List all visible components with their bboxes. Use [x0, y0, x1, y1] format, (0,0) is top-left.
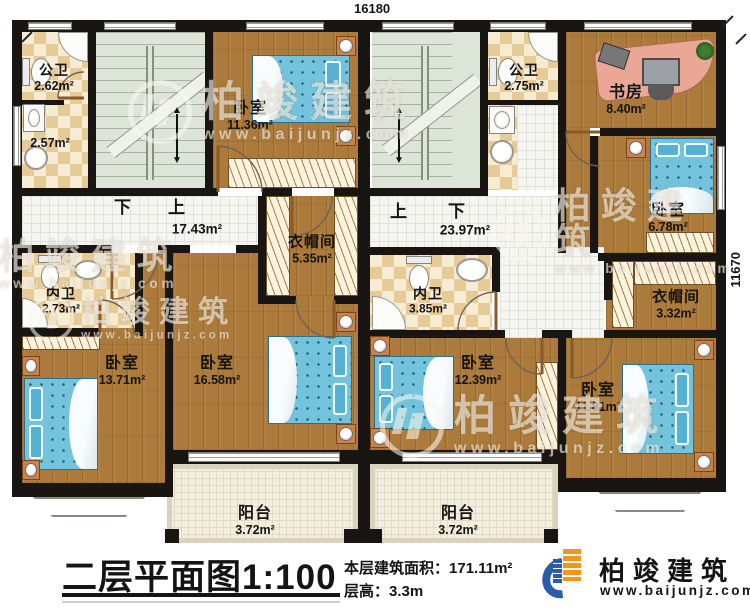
room-label-ensuite-left: 内卫2.73m²	[42, 286, 80, 315]
stair-label-down-right: 下	[448, 197, 465, 222]
room-label-laundry-left: 2.57m²	[30, 136, 70, 150]
plan-info: 本层建筑面积：171.11m² 层高：3.3m	[344, 557, 512, 604]
stair-label-up-left: 上	[168, 193, 185, 218]
floor-area-line: 本层建筑面积：171.11m²	[344, 557, 512, 580]
room-label-study: 书房8.40m²	[606, 84, 646, 116]
title-block: 二层平面图1:100 本层建筑面积：171.11m² 层高：3.3m 柏竣建筑 …	[0, 545, 750, 609]
stair-label-up-right: 上	[390, 197, 407, 222]
room-label-bedroom-1239: 卧室12.39m²	[455, 355, 502, 387]
title-underline-shadow	[62, 601, 340, 603]
room-label-public-bath-right: 公卫2.75m²	[504, 63, 544, 93]
room-label-cloak-left: 衣帽间5.35m²	[288, 235, 336, 266]
floor-height-line: 层高：3.3m	[344, 580, 512, 603]
room-label-balcony-left: 阳台3.72m²	[235, 505, 275, 537]
room-label-hall-right: 23.97m²	[440, 222, 490, 237]
room-label-public-bath-left: 公卫2.62m²	[34, 63, 74, 93]
room-label-hall-left: 17.43m²	[172, 221, 222, 236]
room-label-bedroom-1136: 卧室11.36m²	[227, 100, 273, 132]
floor-plan-canvas: ▲ ▼ ▲ ▼	[0, 0, 750, 609]
room-label-bedroom-1371: 卧室13.71m²	[99, 355, 146, 387]
title-underline	[62, 593, 340, 597]
dimension-right: 11670	[728, 252, 743, 287]
room-label-ensuite-right: 内卫3.85m²	[409, 286, 447, 315]
room-label-balcony-right: 阳台3.72m²	[438, 505, 478, 537]
brand-url: www.baijunjz.com	[600, 583, 750, 598]
brand-logo-icon	[543, 549, 591, 603]
dimension-top: 16180	[354, 1, 390, 16]
room-label-bedroom-1181: 卧室11.81m²	[575, 382, 621, 414]
room-label-bedroom-1658: 卧室16.58m²	[194, 355, 241, 387]
brand-logo: 柏竣建筑 www.baijunjz.com	[543, 547, 743, 605]
stair-label-down-left: 下	[114, 193, 131, 218]
room-label-bedroom-678: 卧室6.78m²	[648, 202, 688, 234]
room-label-cloak-right: 衣帽间3.32m²	[652, 290, 700, 321]
